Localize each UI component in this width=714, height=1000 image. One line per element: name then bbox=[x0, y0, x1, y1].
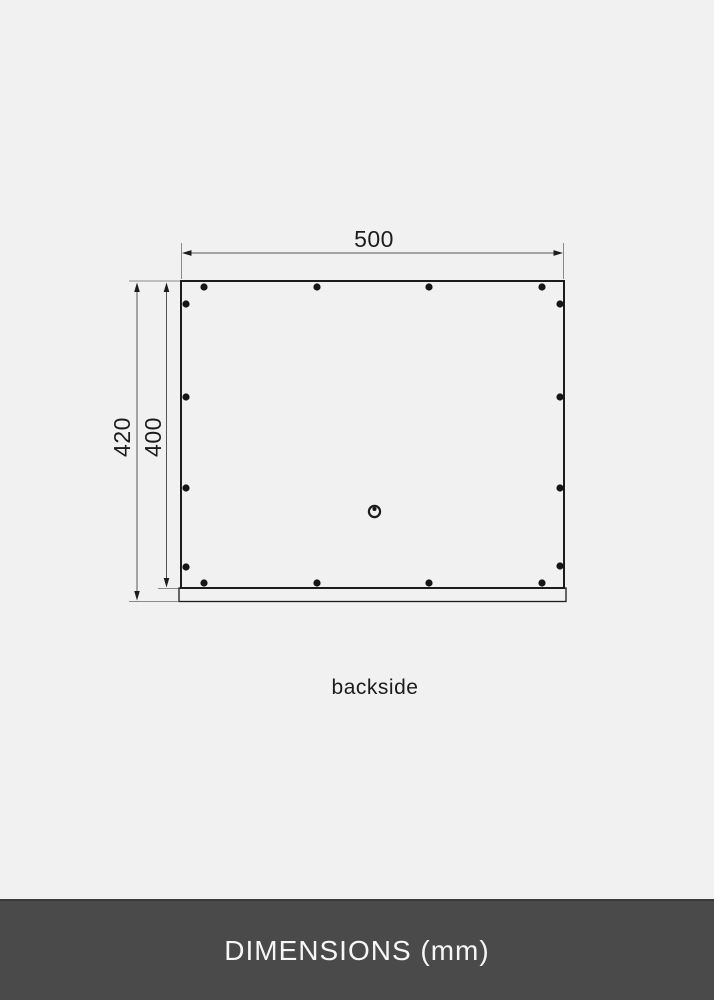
staple-dot bbox=[313, 579, 320, 586]
frame-height-dimension: 400 bbox=[140, 283, 179, 589]
staple-dot bbox=[313, 283, 320, 290]
total-height-dimension-label: 420 bbox=[109, 417, 135, 457]
staple-dot bbox=[538, 283, 545, 290]
width-dimension-label: 500 bbox=[354, 226, 394, 252]
frame-outline bbox=[181, 281, 564, 588]
staple-dot bbox=[182, 300, 189, 307]
backside-diagram: 500 420 400 bbox=[0, 0, 714, 899]
staple-dot bbox=[200, 283, 207, 290]
footer-title: DIMENSIONS (mm) bbox=[224, 935, 489, 967]
width-arrow-left bbox=[182, 250, 192, 256]
staple-dot bbox=[556, 562, 563, 569]
staple-dot bbox=[556, 393, 563, 400]
view-label: backside bbox=[332, 676, 419, 699]
staple-dot bbox=[182, 563, 189, 570]
staple-dots bbox=[182, 283, 563, 586]
product-dimension-page: 500 420 400 bbox=[0, 0, 714, 1000]
staple-dot bbox=[556, 484, 563, 491]
staple-dot bbox=[556, 300, 563, 307]
staple-dot bbox=[425, 579, 432, 586]
width-dimension: 500 bbox=[182, 226, 564, 279]
staple-dot bbox=[182, 484, 189, 491]
frame-backside bbox=[179, 281, 566, 602]
hook-pin bbox=[373, 507, 377, 511]
hanging-rail bbox=[179, 588, 566, 602]
frame-height-arrow-top bbox=[164, 283, 170, 293]
total-height-arrow-bottom bbox=[134, 591, 140, 601]
total-height-arrow-top bbox=[134, 283, 140, 293]
frame-height-dimension-label: 400 bbox=[140, 417, 166, 457]
staple-dot bbox=[425, 283, 432, 290]
staple-dot bbox=[538, 579, 545, 586]
frame-height-arrow-bottom bbox=[164, 578, 170, 588]
staple-dot bbox=[200, 579, 207, 586]
staple-dot bbox=[182, 393, 189, 400]
width-arrow-right bbox=[554, 250, 564, 256]
hanging-hook bbox=[369, 506, 380, 517]
diagram-area: 500 420 400 bbox=[0, 0, 714, 899]
footer-bar: DIMENSIONS (mm) bbox=[0, 899, 714, 1000]
